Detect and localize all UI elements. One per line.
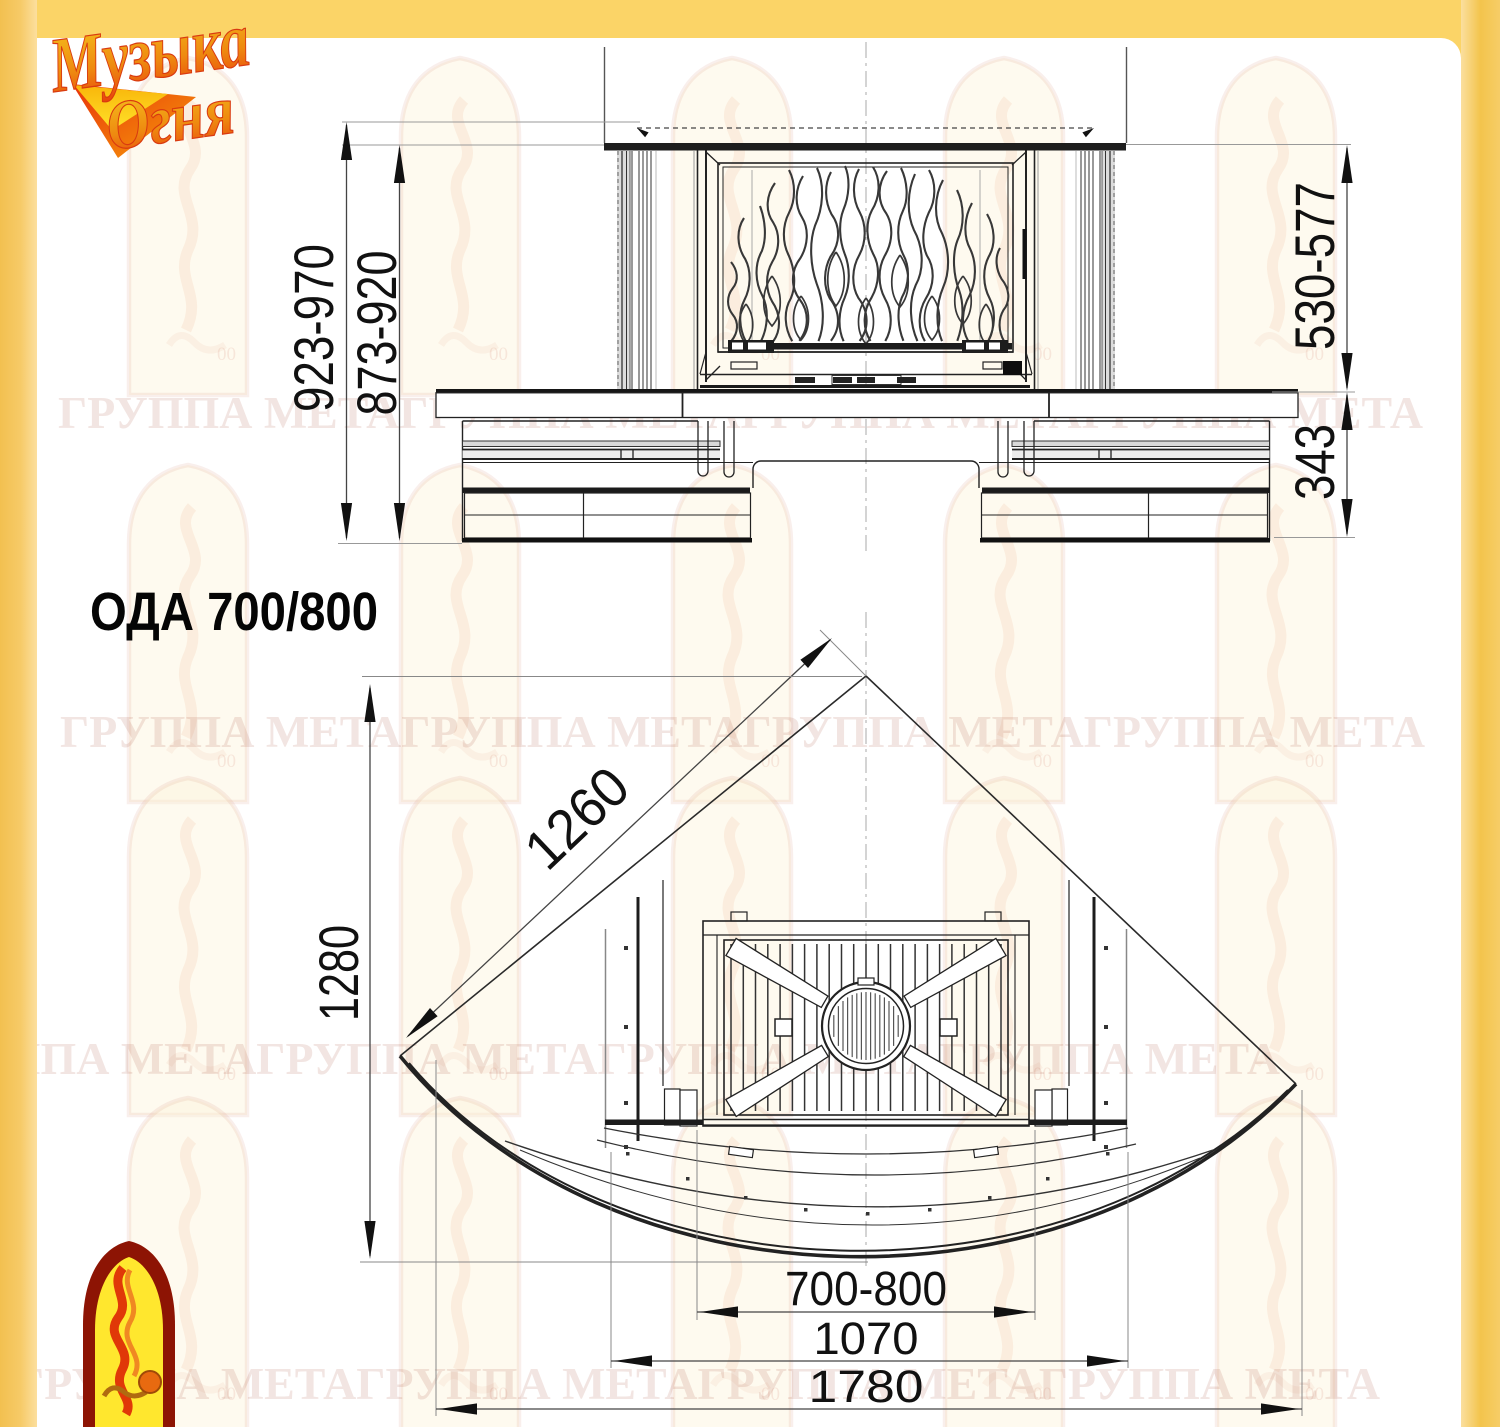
svg-text:343: 343: [1283, 424, 1346, 500]
svg-text:00: 00: [489, 344, 508, 365]
svg-text:873-920: 873-920: [345, 251, 408, 416]
svg-text:1280: 1280: [307, 925, 370, 1021]
svg-text:00: 00: [1033, 344, 1052, 365]
svg-text:1780: 1780: [809, 1361, 924, 1412]
svg-text:ГРУППА МЕТАГРУППА МЕТАГРУППА М: ГРУППА МЕТАГРУППА МЕТАГРУППА МЕТАГРУППА …: [60, 707, 1426, 757]
svg-text:ГРУППА МЕТАГРУППА МЕТАГРУППА М: ГРУППА МЕТАГРУППА МЕТАГРУППА МЕТАГРУППА …: [0, 1034, 1281, 1084]
svg-text:00: 00: [1305, 1064, 1324, 1085]
svg-text:530-577: 530-577: [1283, 182, 1346, 350]
svg-text:ГРУППА МЕТАГРУППА МЕТАГРУППА М: ГРУППА МЕТАГРУППА МЕТАГРУППА МЕТАГРУППА …: [15, 1359, 1381, 1409]
svg-text:1070: 1070: [814, 1313, 919, 1364]
svg-text:923-970: 923-970: [282, 244, 345, 412]
svg-text:ОДА 700/800: ОДА 700/800: [90, 582, 378, 642]
svg-text:00: 00: [217, 344, 236, 365]
svg-text:700-800: 700-800: [785, 1263, 947, 1316]
